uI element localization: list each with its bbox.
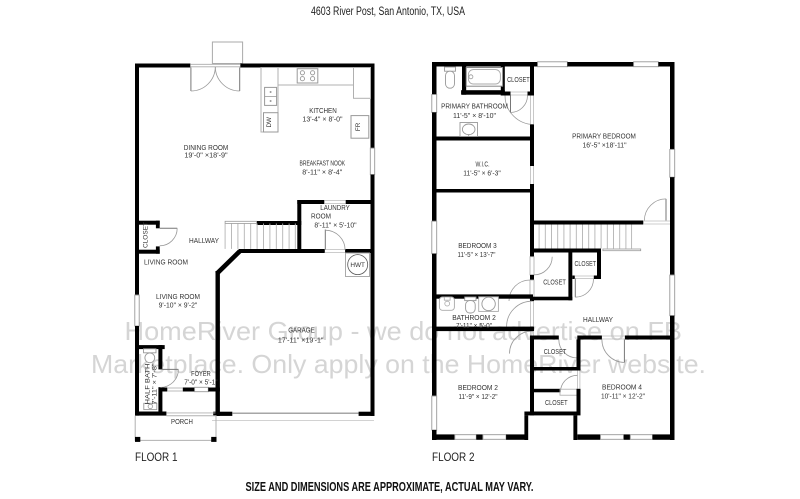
svg-text:CLOSET: CLOSET xyxy=(143,222,150,248)
svg-text:DINING ROOM: DINING ROOM xyxy=(184,143,229,152)
svg-text:11'-5" × 8'-10": 11'-5" × 8'-10" xyxy=(453,113,497,120)
svg-text:HWT: HWT xyxy=(350,262,365,269)
svg-text:11'-5" × 6'-3": 11'-5" × 6'-3" xyxy=(463,171,501,178)
svg-text:SIZE AND DIMENSIONS ARE APPROX: SIZE AND DIMENSIONS ARE APPROXIMATE, ACT… xyxy=(246,480,534,494)
svg-text:GARAGE: GARAGE xyxy=(288,326,315,335)
svg-text:4603 River Post, San Antonio,: 4603 River Post, San Antonio, TX, USA xyxy=(311,6,465,18)
svg-text:7'-11" × 7'-8": 7'-11" × 7'-8" xyxy=(152,364,159,405)
svg-text:BREAKFAST NOOK: BREAKFAST NOOK xyxy=(300,159,346,168)
svg-text:BEDROOM 4: BEDROOM 4 xyxy=(602,382,642,391)
svg-text:17'-11" ×19'-1": 17'-11" ×19'-1" xyxy=(278,338,324,345)
svg-text:7'-11" × 5'-0": 7'-11" × 5'-0" xyxy=(456,323,492,330)
svg-text:BATHROOM 2: BATHROOM 2 xyxy=(452,313,496,322)
svg-text:8'-11" × 5'-10": 8'-11" × 5'-10" xyxy=(314,222,357,229)
svg-text:19'-0" ×18'-9": 19'-0" ×18'-9" xyxy=(184,153,228,160)
svg-text:HALLWAY: HALLWAY xyxy=(189,236,219,245)
svg-text:KITCHEN: KITCHEN xyxy=(309,106,337,115)
svg-text:FLOOR 2: FLOOR 2 xyxy=(432,452,475,464)
svg-text:CLOSET: CLOSET xyxy=(545,398,568,407)
svg-text:8'-11" × 8'-4": 8'-11" × 8'-4" xyxy=(302,169,343,176)
svg-text:ROOM: ROOM xyxy=(311,212,331,221)
svg-text:PRIMARY BATHROOM: PRIMARY BATHROOM xyxy=(441,102,508,111)
svg-text:LIVING ROOM: LIVING ROOM xyxy=(156,292,200,301)
svg-text:16'-5" ×18'-11": 16'-5" ×18'-11" xyxy=(583,143,627,150)
svg-text:DW: DW xyxy=(266,117,273,128)
svg-text:HALF BATH: HALF BATH xyxy=(145,363,152,405)
svg-text:CLOSET: CLOSET xyxy=(575,259,597,268)
svg-text:11'-9" × 12'-2": 11'-9" × 12'-2" xyxy=(459,394,498,401)
svg-text:BEDROOM 2: BEDROOM 2 xyxy=(458,383,498,392)
svg-text:11'-5" × 13'-7": 11'-5" × 13'-7" xyxy=(458,252,496,259)
svg-text:CLOSET: CLOSET xyxy=(507,75,530,84)
svg-text:CLOSET: CLOSET xyxy=(543,278,566,287)
svg-text:BEDROOM 3: BEDROOM 3 xyxy=(458,241,497,250)
svg-text:9'-10" × 9'-2": 9'-10" × 9'-2" xyxy=(159,302,198,309)
svg-text:HALLWAY: HALLWAY xyxy=(583,315,613,324)
svg-text:PRIMARY BEDROOM: PRIMARY BEDROOM xyxy=(572,132,636,141)
svg-text:FOYER: FOYER xyxy=(191,369,211,378)
svg-text:10'-11" × 12'-2": 10'-11" × 12'-2" xyxy=(601,393,645,400)
svg-text:FLOOR 1: FLOOR 1 xyxy=(135,452,178,464)
svg-text:FR: FR xyxy=(355,122,362,131)
svg-text:LIVING ROOM: LIVING ROOM xyxy=(144,258,188,267)
svg-text:W.I.C.: W.I.C. xyxy=(476,160,490,169)
svg-text:PORCH: PORCH xyxy=(171,417,193,426)
svg-text:13'-4" × 8'-0": 13'-4" × 8'-0" xyxy=(302,116,343,123)
svg-text:7'-0" × 5'-1": 7'-0" × 5'-1" xyxy=(184,380,218,387)
svg-text:Marketplace. Only apply on the: Marketplace. Only apply on the HomeRiver… xyxy=(91,349,706,379)
svg-text:CLOSET: CLOSET xyxy=(544,347,567,356)
